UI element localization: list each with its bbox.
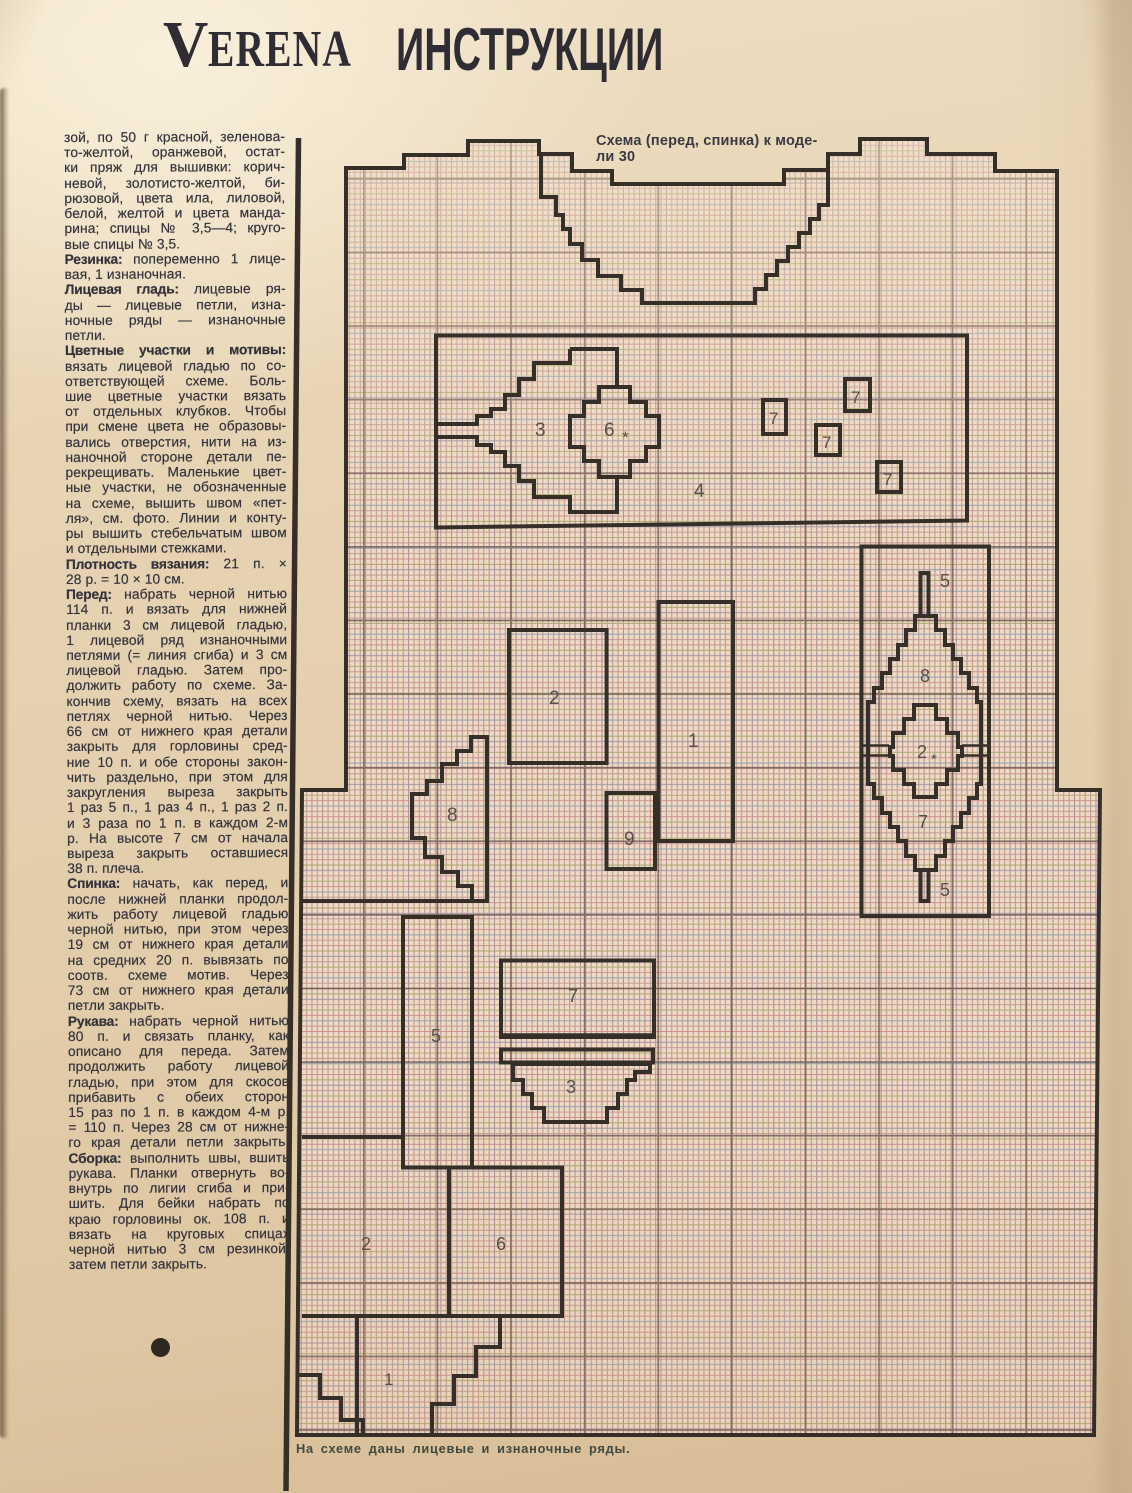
svg-text:8: 8 bbox=[447, 805, 458, 826]
svg-text:3: 3 bbox=[535, 420, 546, 441]
svg-text:2: 2 bbox=[917, 742, 927, 762]
svg-text:5: 5 bbox=[940, 880, 950, 900]
svg-text:*: * bbox=[931, 751, 937, 768]
svg-text:8: 8 bbox=[920, 666, 930, 686]
svg-text:7: 7 bbox=[568, 986, 578, 1006]
svg-text:4: 4 bbox=[694, 481, 705, 502]
svg-text:5: 5 bbox=[940, 571, 950, 591]
svg-text:5: 5 bbox=[431, 1026, 441, 1046]
svg-text:2: 2 bbox=[361, 1234, 371, 1254]
svg-text:*: * bbox=[622, 428, 629, 447]
svg-text:9: 9 bbox=[624, 829, 635, 850]
svg-text:7: 7 bbox=[769, 409, 778, 428]
svg-text:2: 2 bbox=[549, 688, 560, 709]
svg-text:6: 6 bbox=[496, 1234, 506, 1254]
svg-text:1: 1 bbox=[384, 1370, 393, 1389]
svg-text:1: 1 bbox=[688, 731, 699, 752]
svg-text:3: 3 bbox=[566, 1077, 576, 1097]
svg-text:7: 7 bbox=[851, 388, 860, 407]
svg-text:7: 7 bbox=[883, 470, 892, 489]
svg-text:7: 7 bbox=[822, 433, 831, 452]
svg-text:7: 7 bbox=[918, 812, 928, 832]
svg-text:6: 6 bbox=[604, 420, 615, 441]
